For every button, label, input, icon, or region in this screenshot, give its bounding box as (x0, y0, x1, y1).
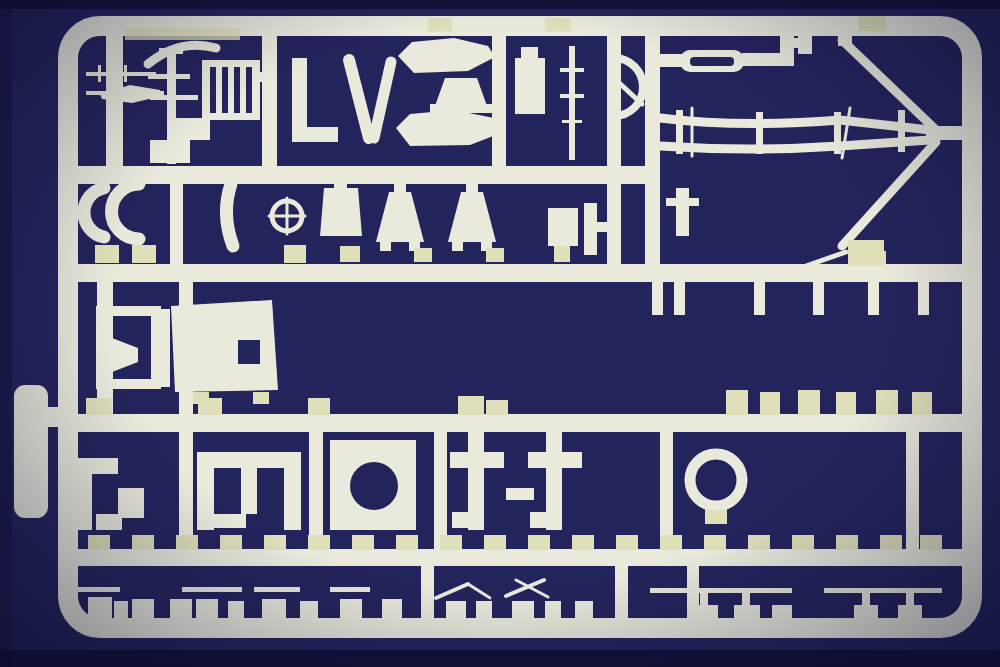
gate-tab (705, 510, 727, 524)
runner-vertical (421, 564, 434, 622)
gate-tab (864, 251, 886, 264)
part-L-bracket-foot (292, 127, 338, 142)
part-gun-barrel (182, 587, 242, 592)
part-gun-mount (512, 601, 534, 622)
part-T-bracket-foot (452, 512, 480, 528)
sprue-peg (674, 282, 685, 315)
part-E-bracket-leg (241, 466, 257, 514)
part-gun-barrel (254, 587, 300, 592)
part-gun-mount (114, 601, 128, 621)
part-mid-tab (506, 488, 534, 500)
runner-vertical (615, 562, 628, 624)
part-signal-mast-arm (150, 95, 198, 100)
part-gun-barrel (330, 587, 370, 592)
runner-vertical (179, 430, 193, 551)
part-T-post-bar (666, 198, 699, 206)
gate-tab-row (616, 535, 638, 550)
part-h-bracket-stem (584, 203, 597, 255)
part-gun-barrel-long (824, 588, 942, 593)
part-gun-barrel (74, 587, 120, 592)
part-funnel-tab (466, 184, 478, 193)
part-railing-stanchion (756, 112, 763, 154)
part-tall-block-top (521, 47, 538, 60)
gate-tab (486, 400, 508, 415)
part-radiator-slot (246, 67, 252, 113)
part-h-bracket-branch (597, 222, 614, 232)
part-boom-link-slot (690, 57, 734, 66)
part-T-bracket-bar (450, 452, 504, 468)
runner-vertical (262, 28, 277, 168)
part-gun-mount (854, 605, 878, 625)
gate-tab (253, 392, 269, 404)
gate-tab-row (836, 535, 858, 550)
part-deck-plate-hole (238, 340, 260, 364)
gate-tab-row (528, 535, 550, 550)
part-square-block (548, 208, 578, 246)
part-gun-mount (132, 599, 154, 623)
part-gun-mount (88, 597, 112, 623)
part-antenna-tick (111, 65, 114, 82)
gate-tab-row (396, 535, 418, 550)
photo-top-band (0, 0, 1000, 9)
part-gun-mount (446, 601, 466, 622)
part-gun-mount (228, 601, 244, 621)
photo-bottom-band (0, 650, 1000, 667)
gate-tab-row (264, 535, 286, 550)
part-T-bracket-foot (530, 512, 558, 528)
part-deck-plate (171, 300, 278, 392)
part-antenna-tick (124, 65, 127, 82)
gate-tab (876, 390, 898, 415)
gate-tab-row (880, 535, 902, 550)
part-radiator-slot (210, 67, 216, 113)
runner-vertical (492, 28, 506, 168)
part-funnel-tab (334, 180, 347, 189)
part-gun-mount (545, 601, 561, 621)
gate-tab (760, 392, 780, 415)
gate-tab-row (220, 535, 242, 550)
part-antenna-tick (98, 65, 101, 82)
gate-tab (920, 535, 942, 550)
gate-band (125, 28, 240, 40)
runner-vertical (660, 430, 673, 551)
runner-horizontal-1 (66, 166, 660, 184)
gate-tab (458, 396, 484, 415)
gate-tab (545, 18, 571, 32)
part-gun-post (906, 593, 914, 605)
gate-tab (132, 245, 156, 263)
sprue-peg (868, 282, 879, 315)
part-frame-plate-bar (157, 309, 170, 387)
part-railing-stanchion (676, 110, 683, 154)
part-gun-mount (196, 599, 218, 623)
part-radiator-slot (234, 67, 240, 113)
gate-tab (428, 18, 452, 32)
gate-tab-row (132, 535, 154, 550)
part-boom-bar-right (742, 53, 782, 66)
gate-tab-row (748, 535, 770, 550)
gate-tab-row (88, 535, 110, 550)
part-small-block (118, 488, 144, 518)
gate-tab (414, 248, 432, 262)
part-boom-hook-top (790, 38, 808, 48)
part-railing-stanchion (898, 110, 905, 152)
part-gun-mount (692, 605, 718, 625)
gate-tab (554, 246, 570, 262)
gate-tab-row (176, 535, 198, 550)
gate-tab (198, 398, 222, 415)
sprue-peg (652, 282, 663, 315)
part-signal-mast-top (159, 48, 183, 54)
gate-tab-row (792, 535, 814, 550)
gate-tab (95, 245, 119, 263)
gate-tab-row (660, 535, 682, 550)
gate-tab-row (704, 535, 726, 550)
part-radiator-slot (222, 67, 228, 113)
sprue-peg (918, 282, 929, 315)
gate-tab (284, 245, 306, 263)
gate-tab (340, 246, 360, 262)
part-T-bracket-bar (528, 452, 582, 468)
part-J-bracket-top (76, 458, 118, 474)
part-mast-apex-connector (926, 126, 972, 140)
runner-horizontal-4 (62, 549, 972, 566)
part-gun-mount (300, 601, 318, 621)
part-railing-stanchion (834, 112, 841, 154)
part-E-bracket-top (197, 452, 301, 468)
gate-tab (912, 392, 932, 415)
part-E-bracket-foot (214, 514, 246, 528)
part-funnel-tab (394, 184, 406, 193)
runner-vertical (906, 430, 919, 551)
gate-tab-row (572, 535, 594, 550)
runner-horizontal-2 (66, 264, 972, 282)
part-T-post-stem (676, 188, 689, 236)
sprue-peg (813, 282, 824, 315)
part-mast-top-stub (838, 28, 852, 46)
gate-tab-row (440, 535, 462, 550)
sprue-photo-figure (0, 0, 1000, 667)
part-thin-mast-yard (560, 68, 584, 72)
part-yagi-antenna (86, 72, 156, 76)
part-gun-mount (170, 599, 192, 623)
part-gun-mount (898, 605, 922, 625)
runner-horizontal-3 (58, 414, 972, 432)
part-gun-post (862, 593, 870, 605)
part-E-bracket-leg (197, 466, 214, 530)
part-gun-mount (734, 605, 760, 625)
part-funnel-foot (380, 242, 391, 251)
gate-tab (486, 248, 504, 262)
part-gun-post (742, 593, 750, 605)
part-gun-mount (382, 599, 402, 623)
part-gun-mount (575, 601, 593, 621)
gate-tab (86, 398, 112, 415)
part-thin-mast (569, 46, 575, 160)
runner-vertical (434, 430, 447, 551)
gate-tab-row (308, 535, 330, 550)
part-curved-blade (226, 184, 233, 246)
runner-vertical (309, 430, 323, 551)
photo-left-shade (0, 0, 12, 667)
gate-tab (858, 16, 886, 31)
part-turret-tub-hole (350, 462, 398, 510)
part-signal-mast-arm (148, 74, 190, 79)
part-thin-mast-yard (562, 120, 582, 123)
sprue-peg (754, 282, 765, 315)
part-funnel-base (320, 188, 362, 236)
gate-tab (798, 390, 820, 415)
part-tall-block (515, 58, 545, 114)
part-gun-mount (476, 601, 492, 621)
part-thin-mast-yard (560, 94, 584, 98)
runner-vertical (170, 182, 183, 266)
part-gun-post (700, 593, 708, 605)
part-ring (690, 454, 742, 506)
part-E-bracket-leg (284, 466, 301, 530)
gate-tab-row (484, 535, 506, 550)
part-gun-barrel-long (650, 588, 792, 593)
side-label-tab (14, 385, 48, 518)
gate-tab (836, 392, 856, 415)
gate-tab (308, 398, 330, 415)
part-gun-mount (262, 599, 286, 623)
part-radiator-bridge (258, 72, 268, 82)
gate-tab (726, 390, 748, 415)
part-boom-bar-left (658, 54, 684, 67)
part-gun-mount (340, 599, 362, 623)
part-gun-mount (772, 605, 792, 625)
sprue-photo (0, 0, 1000, 667)
part-funnel-foot (452, 242, 463, 251)
gate-tab-row (352, 535, 374, 550)
